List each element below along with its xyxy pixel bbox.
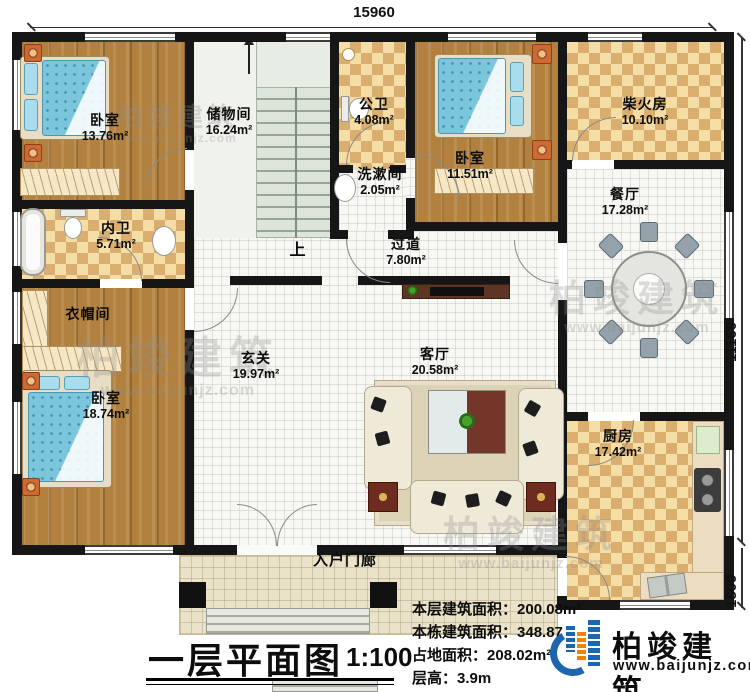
wall-washroom-bottom-a [330,230,348,239]
title-underline-thick [146,678,394,681]
bed-mattress [438,58,506,134]
wall-hall-partition-a [230,276,322,285]
dimension-line-right [741,38,743,543]
floor-plan-canvas: 上 [0,0,750,692]
wall-bedroom2-bottom [406,222,567,231]
plan-scale: 1:100 [346,642,413,673]
porch-pillar-left [179,582,206,608]
side-table [526,482,556,512]
stair-landing [256,35,336,87]
title-underline-thin [146,684,394,685]
logo-bar-orange [577,632,586,662]
brand-name: 柏竣建筑 [612,622,750,692]
nightstand [24,144,42,162]
room-label-washroom: 洗漱间2.05m² [342,166,418,197]
window [724,450,734,536]
window [588,32,642,42]
baijun-logo-icon [552,614,608,682]
room-label-public-bath: 公卫4.08m² [344,96,404,127]
wall-ensuite-bottom-a [12,279,100,288]
room-label-living: 客厅20.58m² [390,346,480,377]
stair-up-label: 上 [283,242,313,261]
plant [407,285,418,296]
nightstand [24,44,42,62]
bathtub [20,208,46,276]
room-label-bedroom-3: 卧室18.74m² [58,390,154,421]
logo-bar-blue-1 [566,626,575,652]
stat-building-area: 本栋建筑面积：348.87 [412,621,563,642]
wardrobe [20,168,120,196]
toilet [60,209,86,217]
dimension-top-width: 15960 [330,4,418,21]
dining-chair [694,280,714,298]
sink [152,226,176,256]
wall-dining-left-a [558,231,567,243]
plan-title: 一层平面图 [148,632,343,684]
room-label-bedroom-2: 卧室11.51m² [424,150,516,181]
room-label-corridor: 过道7.80m² [372,236,440,267]
kitchen-sink [696,426,720,454]
stair-direction-line [248,44,250,74]
window [85,32,175,42]
wall-kitchen-top-b [640,412,734,421]
brand-website: www.baijunjz.com [613,658,750,674]
pillow [24,63,38,95]
nightstand [532,140,552,160]
room-label-kitchen: 厨房17.42m² [578,428,658,459]
pillow [24,99,38,131]
window [12,402,22,474]
porch-pillar-right [370,582,397,608]
room-label-dining: 餐厅17.28m² [582,186,668,217]
room-label-bedroom-1: 卧室13.76m² [55,112,155,143]
room-label-cloakroom: 衣帽间 [48,306,128,323]
wall-bath-left [330,32,339,238]
side-table [368,482,398,512]
wall-ensuite-right [185,200,194,288]
wall-suite-right [185,330,194,545]
dimension-porch-depth: 1800 [723,552,740,608]
wall-bedroom2-right [558,32,567,231]
pillow [64,376,90,390]
room-label-firewood: 柴火房10.10m² [600,96,690,127]
wardrobe [22,346,122,372]
window [85,545,173,555]
stat-storey-height: 层高：3.9m [412,667,491,688]
window [286,32,330,42]
toilet-bowl [64,217,82,239]
pillow [510,96,524,126]
wall-bedroom1-bottom [12,200,194,209]
wall-firewood-bottom-a [558,160,572,169]
room-label-ensuite-bath: 内卫5.71m² [84,220,148,251]
nightstand [532,44,552,64]
window [448,32,536,42]
dining-chair [640,338,658,358]
window [620,600,690,610]
room-label-porch: 入户门廊 [290,552,400,570]
dimension-line-right-lower [741,548,743,608]
pillow [510,62,524,92]
wall-bedroom2-left-a [406,32,415,158]
stair-rail [295,87,297,238]
stat-footprint-area: 占地面积：208.02m² [412,644,551,665]
room-label-storage: 储物间16.24m² [192,106,266,137]
window [12,292,22,344]
tv [430,287,484,296]
plant [458,412,476,430]
dining-chair [584,280,604,298]
dimension-right-height: 11160 [723,262,740,362]
dining-table-center [633,273,665,305]
dining-chair [640,222,658,242]
room-label-entry-hall: 玄关19.97m² [216,350,296,381]
window [404,545,496,555]
logo-bar-blue-2 [588,620,600,666]
nightstand [22,478,40,496]
cushion [465,493,480,508]
nightstand [22,372,40,390]
drain [342,48,355,61]
dimension-line-top [30,27,714,28]
porch-steps [206,608,370,634]
wall-firewood-bottom-b [614,160,734,169]
stove [694,468,721,512]
